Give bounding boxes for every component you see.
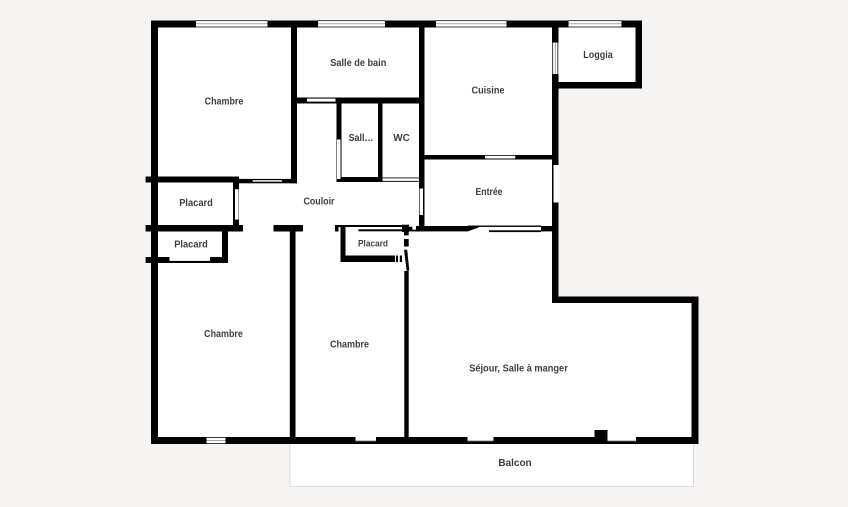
svg-text:Loggia: Loggia (583, 50, 613, 61)
svg-text:Cuisine: Cuisine (472, 86, 505, 97)
svg-text:Entrée: Entrée (476, 187, 503, 198)
svg-text:Chambre: Chambre (330, 340, 369, 351)
svg-text:Sall…: Sall… (349, 133, 374, 144)
svg-text:Chambre: Chambre (204, 329, 243, 340)
svg-text:Couloir: Couloir (304, 197, 335, 208)
svg-text:Balcon: Balcon (498, 458, 531, 469)
svg-text:Placard: Placard (174, 240, 208, 251)
svg-text:Séjour, Salle à manger: Séjour, Salle à manger (469, 364, 568, 375)
svg-text:Placard: Placard (358, 239, 388, 250)
svg-text:Chambre: Chambre (205, 97, 244, 108)
svg-text:WC: WC (393, 133, 410, 144)
svg-text:Salle de bain: Salle de bain (330, 58, 386, 69)
svg-text:Placard: Placard (179, 198, 213, 209)
